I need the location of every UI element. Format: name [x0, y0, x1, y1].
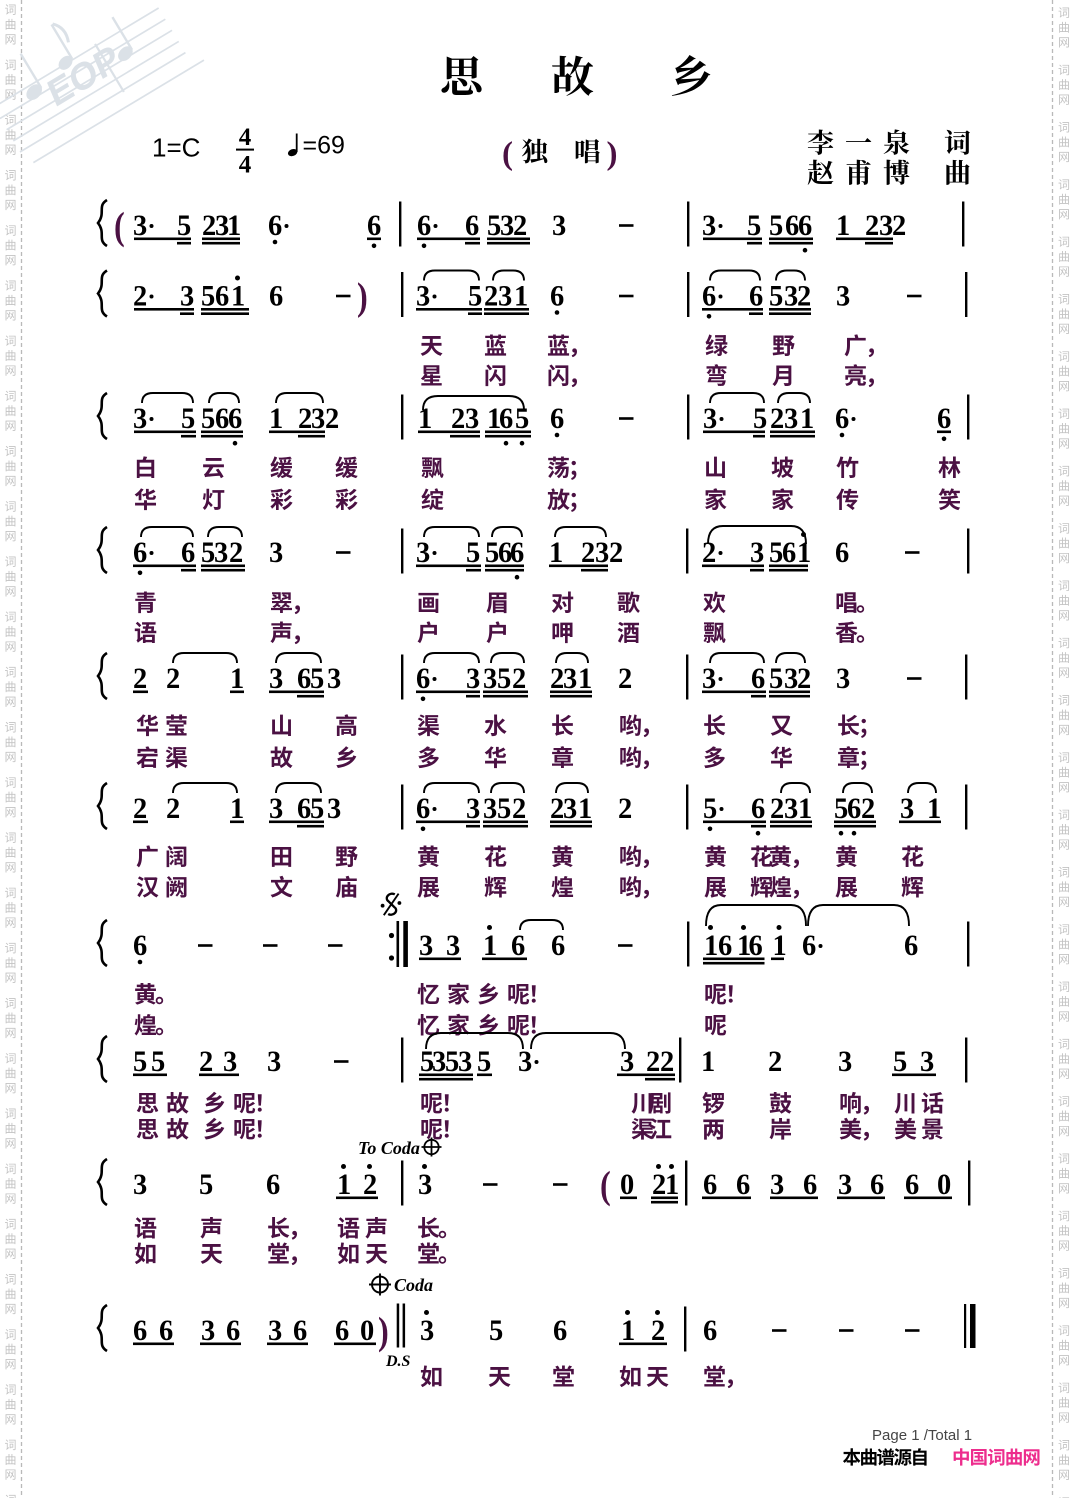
svg-text:6: 6: [416, 662, 430, 695]
svg-text:3: 3: [446, 929, 460, 962]
svg-text:6: 6: [553, 1314, 567, 1347]
svg-text:6: 6: [703, 1314, 717, 1347]
svg-text:3: 3: [466, 662, 480, 695]
svg-text:2: 2: [770, 402, 784, 435]
svg-text:6: 6: [749, 280, 763, 313]
svg-text:0: 0: [937, 1168, 951, 1201]
svg-text:1: 1: [269, 402, 283, 435]
svg-text:3: 3: [702, 209, 716, 242]
svg-text:6: 6: [133, 536, 147, 569]
svg-text:1: 1: [227, 209, 241, 242]
svg-text:5: 5: [181, 402, 195, 435]
svg-text:5: 5: [201, 402, 215, 435]
svg-text:6: 6: [159, 1314, 173, 1347]
svg-text:5: 5: [489, 1314, 503, 1347]
svg-text:2: 2: [618, 662, 632, 695]
svg-text:6: 6: [835, 536, 849, 569]
svg-text:1: 1: [927, 792, 941, 825]
svg-text:3: 3: [419, 929, 433, 962]
svg-text:1: 1: [798, 792, 812, 825]
svg-text:6: 6: [905, 1168, 919, 1201]
svg-text:(: (: [114, 204, 125, 248]
svg-text:2: 2: [133, 662, 147, 695]
svg-text:3: 3: [552, 209, 566, 242]
svg-text:4: 4: [239, 124, 252, 151]
svg-text:6: 6: [550, 402, 564, 435]
svg-text:3: 3: [201, 1314, 215, 1347]
svg-text:6: 6: [937, 402, 951, 435]
svg-text:6: 6: [718, 929, 732, 962]
svg-text:6: 6: [703, 1168, 717, 1201]
svg-text:5: 5: [703, 792, 717, 825]
svg-text:6: 6: [510, 536, 524, 569]
svg-text:Page 1 /Total 1: Page 1 /Total 1: [872, 1427, 972, 1444]
svg-text:2: 2: [797, 662, 811, 695]
svg-text:3: 3: [702, 662, 716, 695]
svg-text:3: 3: [770, 1168, 784, 1201]
svg-text:2: 2: [660, 1045, 674, 1078]
svg-text:2: 2: [133, 792, 147, 825]
svg-text:6: 6: [215, 280, 229, 313]
svg-text:3: 3: [838, 1168, 852, 1201]
svg-text:6: 6: [228, 402, 242, 435]
svg-text:6: 6: [551, 929, 565, 962]
svg-text:6: 6: [847, 792, 861, 825]
svg-text:6: 6: [749, 929, 763, 962]
svg-text:5: 5: [466, 536, 480, 569]
svg-text:6: 6: [904, 929, 918, 962]
svg-text:4: 4: [239, 152, 252, 179]
svg-text:1: 1: [800, 402, 814, 435]
svg-text:6: 6: [465, 209, 479, 242]
svg-text:5: 5: [199, 1168, 213, 1201]
svg-text:6: 6: [133, 929, 147, 962]
svg-text:3: 3: [620, 1045, 634, 1078]
svg-text:3: 3: [483, 792, 497, 825]
svg-text:6: 6: [226, 1314, 240, 1347]
svg-text:6: 6: [835, 402, 849, 435]
svg-text:2: 2: [581, 536, 595, 569]
svg-text:5: 5: [177, 209, 191, 242]
svg-text:2: 2: [512, 792, 526, 825]
svg-text:1: 1: [773, 929, 787, 962]
svg-text:3: 3: [269, 662, 283, 695]
svg-text:5: 5: [497, 792, 511, 825]
svg-text:6: 6: [335, 1314, 349, 1347]
svg-text:2: 2: [325, 402, 339, 435]
svg-text:2: 2: [892, 209, 906, 242]
svg-text:5: 5: [477, 1045, 491, 1078]
svg-text:3: 3: [563, 792, 577, 825]
svg-text:5: 5: [201, 280, 215, 313]
svg-text:6: 6: [782, 536, 796, 569]
svg-text:6: 6: [416, 792, 430, 825]
svg-text:3: 3: [784, 792, 798, 825]
svg-text:1: 1: [797, 536, 811, 569]
svg-text:3: 3: [214, 536, 228, 569]
svg-text:Coda: Coda: [394, 1275, 433, 1295]
svg-text:3: 3: [458, 1045, 472, 1078]
svg-text:): ): [607, 136, 618, 172]
svg-text:1: 1: [665, 1168, 679, 1201]
svg-text:2: 2: [133, 280, 147, 313]
svg-text:1: 1: [549, 536, 563, 569]
svg-text:3: 3: [269, 792, 283, 825]
svg-text:6: 6: [798, 209, 812, 242]
svg-text:1: 1: [418, 402, 432, 435]
svg-text:5: 5: [468, 280, 482, 313]
svg-text:6: 6: [293, 1314, 307, 1347]
svg-text:3: 3: [133, 209, 147, 242]
svg-text:1: 1: [701, 1045, 715, 1078]
svg-text:2: 2: [768, 1045, 782, 1078]
svg-text:3: 3: [180, 280, 194, 313]
svg-text:2: 2: [651, 1314, 665, 1347]
svg-text:3: 3: [703, 402, 717, 435]
svg-text:2: 2: [166, 792, 180, 825]
svg-text:3: 3: [268, 1314, 282, 1347]
svg-text:1: 1: [483, 929, 497, 962]
svg-text:=69: =69: [303, 132, 345, 160]
svg-text:3: 3: [420, 1314, 434, 1347]
svg-text:6: 6: [269, 280, 283, 313]
svg-text:3: 3: [327, 662, 341, 695]
svg-text:1: 1: [836, 209, 850, 242]
svg-text:5: 5: [747, 209, 761, 242]
svg-text:2: 2: [484, 280, 498, 313]
svg-text:2: 2: [513, 209, 527, 242]
svg-text:D.S: D.S: [385, 1353, 411, 1370]
svg-text:3: 3: [595, 536, 609, 569]
svg-text:6: 6: [751, 792, 765, 825]
svg-text:2: 2: [229, 536, 243, 569]
svg-text:3: 3: [836, 280, 850, 313]
svg-text:1: 1: [578, 662, 592, 695]
svg-text:(: (: [502, 136, 513, 172]
svg-text:3: 3: [465, 402, 479, 435]
svg-text:To Coda: To Coda: [358, 1138, 420, 1158]
svg-text:3: 3: [466, 792, 480, 825]
svg-text:3: 3: [838, 1045, 852, 1078]
svg-text:6: 6: [499, 402, 513, 435]
svg-text:6: 6: [702, 280, 716, 313]
svg-text:2: 2: [451, 402, 465, 435]
svg-text:6: 6: [417, 209, 431, 242]
svg-text:2: 2: [702, 536, 716, 569]
svg-text:6: 6: [268, 209, 282, 242]
svg-text:2: 2: [646, 1045, 660, 1078]
svg-text:3: 3: [311, 402, 325, 435]
svg-text:3: 3: [223, 1045, 237, 1078]
svg-text:3: 3: [418, 1168, 432, 1201]
svg-text:1: 1: [704, 929, 718, 962]
svg-text:1=C: 1=C: [152, 133, 200, 163]
svg-text:2: 2: [363, 1168, 377, 1201]
svg-text:0: 0: [360, 1314, 374, 1347]
svg-text:2: 2: [512, 662, 526, 695]
svg-text:5: 5: [151, 1045, 165, 1078]
svg-text:3: 3: [836, 662, 850, 695]
svg-text:): ): [357, 275, 368, 319]
svg-text:3: 3: [267, 1045, 281, 1078]
svg-text:3: 3: [750, 536, 764, 569]
svg-text:2: 2: [861, 792, 875, 825]
svg-text:6: 6: [803, 1168, 817, 1201]
svg-text:1: 1: [578, 792, 592, 825]
svg-text:): ): [378, 1309, 389, 1353]
svg-text:2: 2: [797, 280, 811, 313]
svg-text:3: 3: [900, 792, 914, 825]
svg-text:2: 2: [166, 662, 180, 695]
svg-text:5: 5: [310, 792, 324, 825]
svg-text:1: 1: [514, 280, 528, 313]
svg-text:3: 3: [483, 662, 497, 695]
svg-text:1: 1: [337, 1168, 351, 1201]
svg-text:5: 5: [769, 209, 783, 242]
svg-text:6: 6: [133, 1314, 147, 1347]
svg-text:5: 5: [753, 402, 767, 435]
svg-text:6: 6: [736, 1168, 750, 1201]
svg-text:5: 5: [310, 662, 324, 695]
svg-text:3: 3: [563, 662, 577, 695]
svg-text:1: 1: [230, 662, 244, 695]
svg-text:5: 5: [515, 402, 529, 435]
svg-text:(: (: [600, 1163, 611, 1207]
svg-text:3: 3: [133, 1168, 147, 1201]
svg-text:3: 3: [416, 536, 430, 569]
svg-text:6: 6: [870, 1168, 884, 1201]
svg-text:3: 3: [133, 402, 147, 435]
svg-text:5: 5: [497, 662, 511, 695]
svg-text:3: 3: [416, 280, 430, 313]
svg-text:6: 6: [266, 1168, 280, 1201]
svg-text:2: 2: [770, 792, 784, 825]
svg-text:1: 1: [231, 280, 245, 313]
svg-text:6: 6: [550, 280, 564, 313]
svg-text:5: 5: [769, 662, 783, 695]
svg-text:5: 5: [133, 1045, 147, 1078]
svg-text:6: 6: [181, 536, 195, 569]
svg-text:2: 2: [618, 792, 632, 825]
svg-text:2: 2: [199, 1045, 213, 1078]
svg-text:1: 1: [621, 1314, 635, 1347]
svg-text:5: 5: [769, 280, 783, 313]
svg-text:1: 1: [230, 792, 244, 825]
svg-text:3: 3: [920, 1045, 934, 1078]
svg-text:6: 6: [367, 209, 381, 242]
svg-text:6: 6: [802, 929, 816, 962]
svg-text:2: 2: [865, 209, 879, 242]
svg-text:6: 6: [751, 662, 765, 695]
svg-text:3: 3: [269, 536, 283, 569]
svg-text:6: 6: [511, 929, 525, 962]
svg-text:3: 3: [784, 402, 798, 435]
svg-text:3: 3: [498, 280, 512, 313]
svg-text:5: 5: [893, 1045, 907, 1078]
svg-text:0: 0: [620, 1168, 634, 1201]
svg-text:3: 3: [327, 792, 341, 825]
svg-text:3: 3: [518, 1045, 532, 1078]
svg-text:2: 2: [609, 536, 623, 569]
